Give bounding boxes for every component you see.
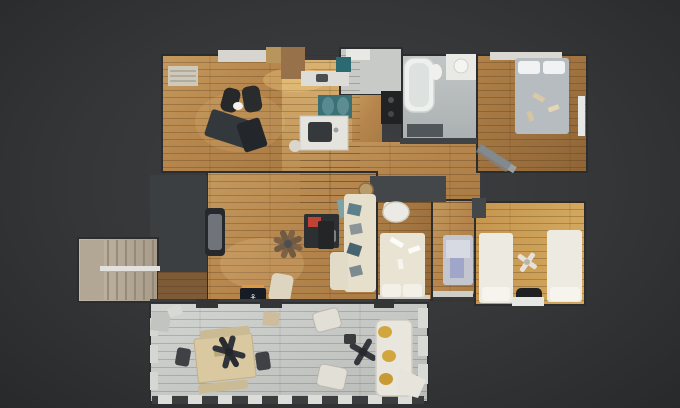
- dollhouse-view[interactable]: ⚓: [0, 0, 680, 408]
- floorplan-shapes: ⚓: [78, 47, 587, 404]
- kitchen-stool: [289, 140, 301, 152]
- vanity-sink-bowl: [454, 59, 468, 73]
- deck-side-table: [262, 311, 279, 326]
- kitchen-rug-motif-b: [337, 97, 349, 115]
- bedroom1-pillow-right: [543, 61, 565, 74]
- kitchen-counter-sink: [316, 74, 328, 82]
- nursery-sequin-shimmer: [446, 240, 470, 258]
- washer-door-dot: [388, 97, 394, 103]
- kitchen-island-sink: [308, 122, 332, 142]
- washer-dryer-stack: [381, 91, 402, 124]
- twins-bed-left-pillow: [482, 287, 510, 301]
- gold-pillow-a: [378, 326, 392, 338]
- deck-bottom-posts: [158, 395, 412, 404]
- gold-pillow-c: [379, 373, 393, 385]
- nursery-bottom-baseboard: [433, 291, 473, 297]
- bathtub-basin: [409, 63, 429, 107]
- deck-chair-right: [255, 351, 271, 371]
- sofa-pillow-gray: [349, 223, 363, 235]
- toilet: [430, 64, 442, 80]
- floorplan-svg: ⚓: [0, 0, 680, 408]
- kitchen-rug-motif-a: [322, 97, 334, 115]
- stairs-hall-plank-texture: [158, 272, 207, 302]
- deck-door-block-c: [374, 299, 394, 308]
- living-fan-hub: [284, 240, 292, 248]
- deck-lounge-fan-hub: [359, 348, 367, 356]
- living-dark-sofa-cushions: [208, 214, 222, 250]
- pantry-teal-box: [336, 57, 351, 72]
- office-console-desk: [218, 50, 266, 62]
- bedroom2-bassinet: [383, 202, 409, 222]
- deck-door-block-b: [260, 299, 282, 308]
- living-coffee-table: [318, 221, 334, 249]
- deck-dining-fan-hub: [225, 348, 233, 356]
- kitchen-faucet: [334, 128, 339, 133]
- bedroom1-wall-mirror: [578, 96, 585, 136]
- living-sofa-chaise: [330, 252, 348, 290]
- twins-left-wall: [472, 198, 486, 218]
- bathroom-mat: [407, 124, 443, 137]
- deck-dark-side-table: [344, 334, 356, 344]
- dryer-door-dot: [388, 111, 394, 117]
- nursery-blue-glow: [450, 258, 464, 278]
- deck-door-block-a: [196, 299, 218, 308]
- bedroom2-pillow-left: [382, 284, 401, 297]
- bathroom-bottom-wall: [400, 138, 477, 144]
- office-white-item: [233, 102, 243, 110]
- bedroom2-top-wall: [370, 176, 446, 202]
- twins-fan-hub: [524, 259, 530, 265]
- bedroom2-pillow-right: [403, 284, 422, 297]
- twins-bottom-dresser: [512, 297, 544, 306]
- stairs-railing: [100, 266, 160, 271]
- twins-bed-right-pillow: [550, 287, 580, 301]
- bedroom1-pillow-left: [518, 61, 540, 74]
- deck-right-posts: [418, 308, 428, 384]
- gold-pillow-b: [382, 350, 396, 362]
